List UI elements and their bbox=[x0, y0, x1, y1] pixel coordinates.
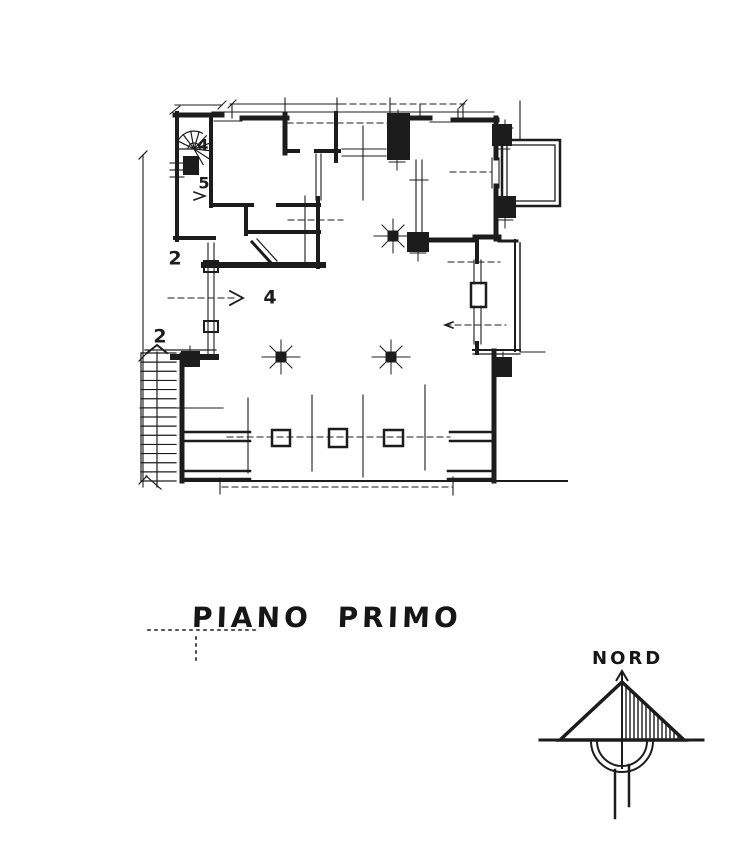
column-tick bbox=[398, 225, 404, 231]
wall-pier bbox=[183, 156, 199, 175]
column-tick bbox=[286, 362, 292, 368]
floorplan-drawing: 45224 bbox=[0, 0, 750, 846]
diagonal-line bbox=[146, 476, 161, 489]
column-tick bbox=[286, 346, 292, 352]
arrow-marker bbox=[194, 192, 205, 200]
column-tick bbox=[270, 362, 276, 368]
pillar bbox=[384, 430, 403, 446]
pillar bbox=[471, 283, 486, 307]
column-tick bbox=[270, 346, 276, 352]
plan-number-label: 4 bbox=[263, 287, 276, 309]
column-tick bbox=[380, 362, 386, 368]
pillar bbox=[507, 145, 555, 201]
column-tick bbox=[382, 241, 388, 247]
pillar bbox=[204, 321, 218, 332]
pillar bbox=[272, 430, 290, 446]
column-tick bbox=[396, 362, 402, 368]
column-tick bbox=[382, 225, 388, 231]
column-tick bbox=[396, 346, 402, 352]
north-compass-label: NORD bbox=[592, 648, 663, 669]
floorplan-page: 45224 PIANO PRIMO NORD bbox=[0, 0, 750, 846]
column-tick bbox=[398, 241, 404, 247]
plan-number-label: 4 bbox=[197, 136, 208, 155]
column-tick bbox=[380, 346, 386, 352]
plan-number-label: 2 bbox=[168, 248, 181, 270]
plan-number-label: 5 bbox=[198, 174, 209, 193]
plan-number-label: 2 bbox=[153, 326, 166, 348]
plan-title: PIANO PRIMO bbox=[191, 601, 462, 634]
pillar bbox=[329, 429, 347, 447]
